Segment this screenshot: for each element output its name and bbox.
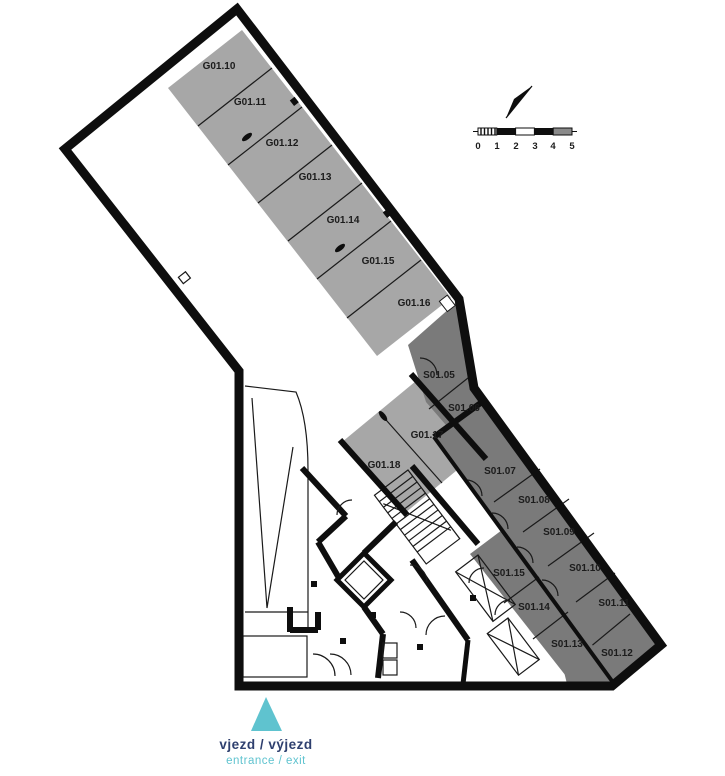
scale-tick-0: 0 bbox=[475, 141, 480, 152]
entrance-label-czech: vjezd / výjezd bbox=[219, 737, 312, 752]
room-label-s01-05: S01.05 bbox=[423, 370, 455, 381]
room-label-g01-12: G01.12 bbox=[266, 138, 299, 149]
floor-plan-drawing: G01.10 G01.11 G01.12 G01.13 G01.14 G01.1… bbox=[0, 0, 725, 776]
room-label-s01-13: S01.13 bbox=[551, 639, 583, 650]
room-label-s01-11: S01.11 bbox=[598, 598, 630, 609]
scale-bar-ticks: 0 1 2 3 4 5 bbox=[475, 141, 575, 152]
floor-plan-page: G01.10 G01.11 G01.12 G01.13 G01.14 G01.1… bbox=[0, 0, 725, 776]
entrance-marker-icon bbox=[251, 697, 282, 731]
room-label-s01-08: S01.08 bbox=[518, 495, 550, 506]
scale-bar: 0 1 2 3 4 5 bbox=[473, 128, 577, 152]
scale-tick-4: 4 bbox=[550, 141, 556, 152]
room-label-s01-15: S01.15 bbox=[493, 568, 525, 579]
room-label-g01-18: G01.18 bbox=[368, 460, 401, 471]
room-label-s01-07: S01.07 bbox=[484, 466, 516, 477]
elevator bbox=[337, 553, 391, 607]
room-label-s01-09: S01.09 bbox=[543, 527, 575, 538]
north-arrow-icon bbox=[506, 86, 532, 118]
room-label-g01-10: G01.10 bbox=[203, 61, 236, 72]
entrance-ramp bbox=[243, 386, 335, 677]
scale-tick-1: 1 bbox=[494, 141, 500, 152]
room-label-s01-10: S01.10 bbox=[569, 563, 601, 574]
entrance-label-english: entrance / exit bbox=[226, 755, 306, 767]
room-label-g01-13: G01.13 bbox=[299, 172, 332, 183]
scale-tick-2: 2 bbox=[513, 141, 518, 152]
room-label-s01-12: S01.12 bbox=[601, 648, 633, 659]
scale-tick-5: 5 bbox=[569, 141, 575, 152]
room-label-g01-16: G01.16 bbox=[398, 298, 431, 309]
room-label-g01-11: G01.11 bbox=[234, 97, 267, 108]
room-label-s01-14: S01.14 bbox=[518, 602, 550, 613]
room-label-g01-17: G01.17 bbox=[411, 430, 444, 441]
entrance-marker: vjezd / výjezd entrance / exit bbox=[219, 697, 312, 767]
scale-tick-3: 3 bbox=[532, 141, 537, 152]
room-label-g01-15: G01.15 bbox=[362, 256, 395, 267]
room-label-g01-14: G01.14 bbox=[327, 215, 360, 226]
room-label-s01-06: S01.06 bbox=[448, 403, 480, 414]
